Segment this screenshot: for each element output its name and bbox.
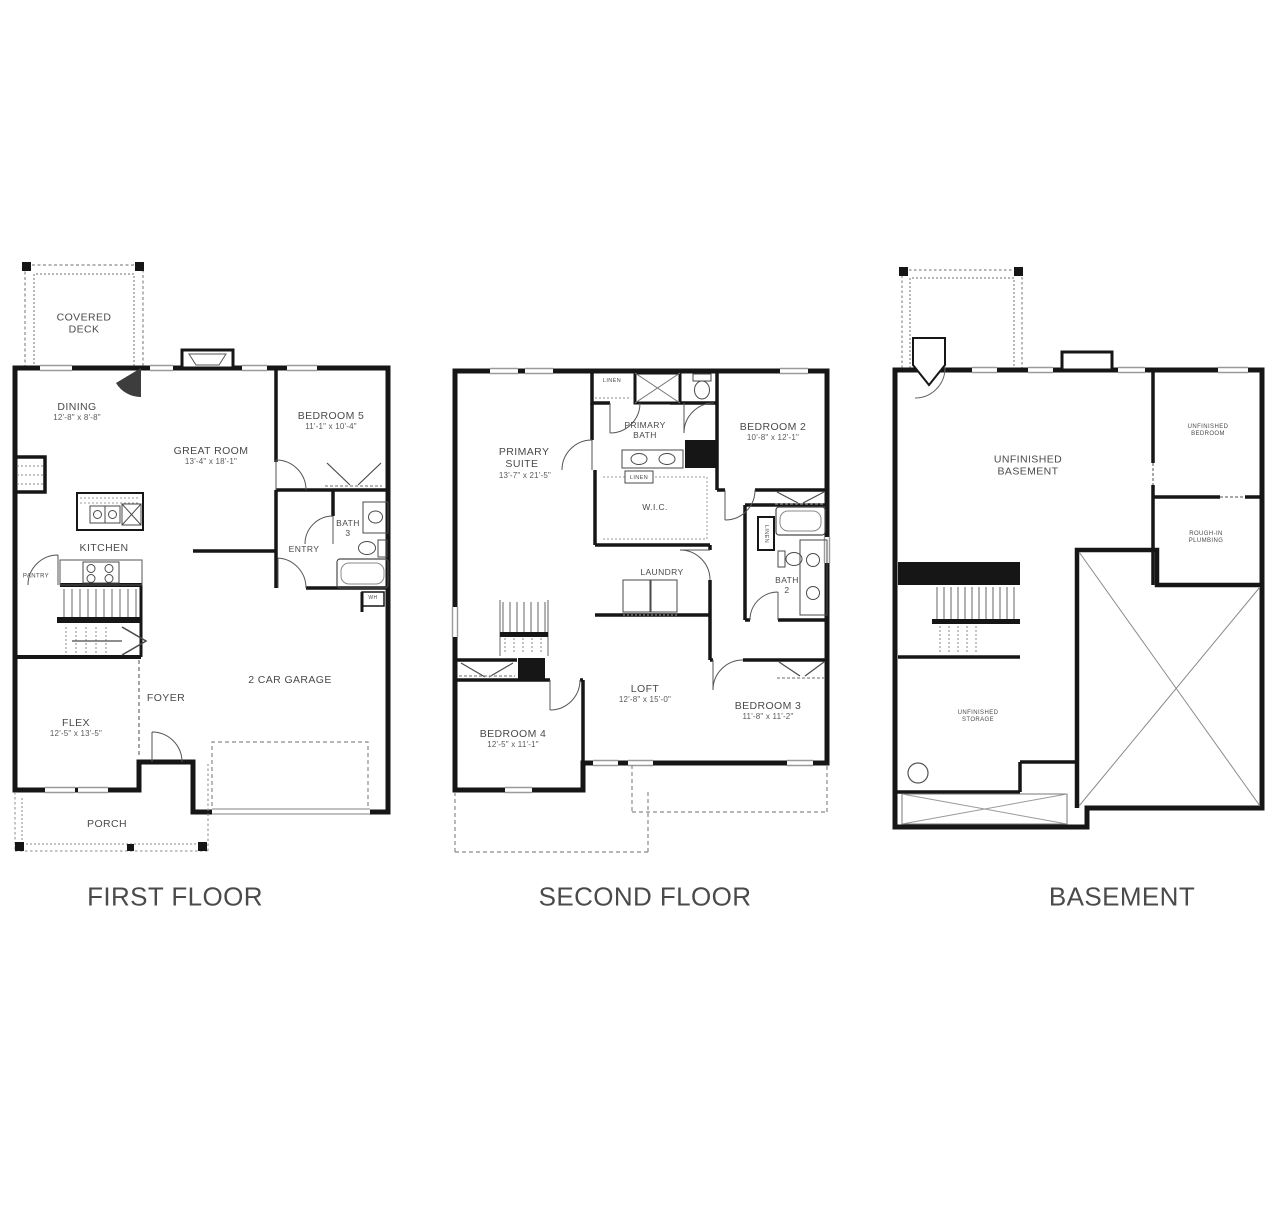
- wall-fill: [685, 440, 717, 468]
- covered-deck-outline: [25, 265, 143, 368]
- deck-post: [22, 262, 31, 271]
- first-floor-plan-drawing: [10, 250, 400, 865]
- deck-post: [135, 262, 144, 271]
- first-floor-title: FIRST FLOOR: [87, 882, 263, 913]
- shower-icon: [635, 373, 680, 403]
- wall-fill: [898, 562, 1020, 585]
- second-floor-title: SECOND FLOOR: [539, 882, 752, 913]
- basement-plan-drawing: [890, 260, 1270, 835]
- linen-closet-box: [625, 471, 653, 483]
- kitchen-island-icon: [77, 493, 143, 530]
- porch-posts: [15, 842, 207, 851]
- chimney-icon: [182, 350, 233, 368]
- chimney-icon: [1062, 352, 1112, 370]
- deck-post: [1014, 267, 1023, 276]
- floor-plan-sheet: COVERED DECK DINING 12'-8" x 8'-8" GREAT…: [0, 0, 1280, 1208]
- deck-post: [899, 267, 908, 276]
- second-floor-plan-drawing: [445, 365, 840, 860]
- exterior-walls: [15, 368, 388, 812]
- linen-closet-box: [758, 517, 774, 550]
- wall-fill: [518, 658, 545, 680]
- basement-title: BASEMENT: [1049, 882, 1195, 913]
